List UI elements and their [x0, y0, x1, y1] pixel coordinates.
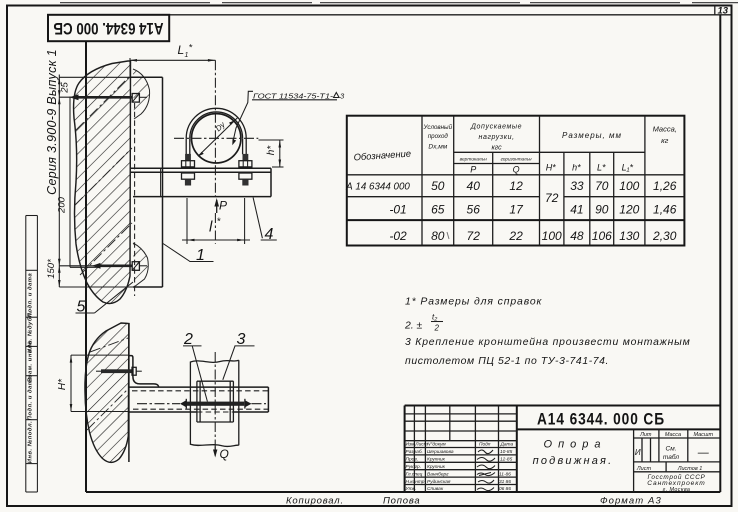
svg-text:06 86: 06 86 — [499, 486, 511, 492]
svg-text:56: 56 — [467, 203, 481, 217]
svg-text:17: 17 — [509, 203, 524, 217]
svg-text:1* Размеры для справок: 1* Размеры для справок — [405, 297, 543, 308]
svg-text:1,26: 1,26 — [653, 179, 677, 193]
svg-text:L*: L* — [597, 163, 606, 173]
svg-text:80: 80 — [431, 229, 445, 243]
svg-text:2. ±: 2. ± — [404, 321, 423, 332]
svg-text:пистолетом ПЦ 52-1 по ТУ-3-: пистолетом ПЦ 52-1 по ТУ-3-741-74. — [405, 356, 609, 367]
svg-text:130: 130 — [619, 229, 639, 243]
svg-text:Изм: Изм — [406, 442, 416, 448]
svg-text:72: 72 — [545, 191, 559, 205]
svg-text:Dх,мм: Dх,мм — [428, 144, 447, 151]
svg-text:13: 13 — [718, 5, 729, 16]
svg-text:-02: -02 — [389, 229, 407, 243]
svg-text:65: 65 — [431, 203, 445, 217]
svg-text:проход: проход — [428, 133, 449, 140]
svg-text:Размеры, мм: Размеры, мм — [562, 131, 622, 140]
svg-text:P: P — [219, 199, 227, 213]
svg-text:48: 48 — [570, 229, 584, 243]
svg-text:100: 100 — [542, 229, 562, 243]
svg-text:72: 72 — [467, 229, 481, 243]
svg-text:А 14 6344 000: А 14 6344 000 — [345, 182, 410, 193]
svg-text:90: 90 — [595, 203, 609, 217]
svg-text:Дата: Дата — [500, 442, 514, 448]
svg-text:31 86: 31 86 — [499, 479, 511, 485]
svg-text:-01: -01 — [389, 203, 406, 217]
svg-text:Масшт: Масшт — [693, 432, 713, 438]
svg-text:N°докум: N°докум — [427, 442, 446, 448]
svg-text:Рук.гр.: Рук.гр. — [406, 464, 422, 470]
svg-text:Листов 1: Листов 1 — [677, 466, 703, 472]
svg-text:41: 41 — [570, 203, 583, 217]
svg-text:Р: Р — [470, 165, 476, 175]
svg-text:25: 25 — [60, 82, 71, 94]
svg-text:Лист: Лист — [636, 466, 652, 472]
svg-text:t₂: t₂ — [432, 313, 437, 322]
svg-text:1: 1 — [196, 247, 205, 264]
svg-text:—: — — [697, 447, 710, 459]
svg-text:Масса,: Масса, — [653, 125, 677, 134]
svg-text:h*: h* — [266, 145, 277, 156]
svg-text:Рудинская: Рудинская — [427, 479, 451, 485]
svg-text:Лит: Лит — [639, 432, 652, 438]
svg-text:Лист: Лист — [414, 442, 427, 448]
svg-text:Опора: Опора — [544, 439, 607, 451]
svg-text:г. Москва: г. Москва — [663, 487, 691, 493]
svg-text:50: 50 — [431, 179, 445, 193]
svg-text:4: 4 — [265, 226, 274, 243]
svg-text:12: 12 — [509, 179, 523, 193]
svg-text:нагрузки,: нагрузки, — [479, 134, 515, 141]
svg-text:Взам. инв.№: Взам. инв.№ — [28, 340, 34, 382]
svg-text:10-85: 10-85 — [500, 449, 513, 455]
svg-text:40: 40 — [467, 179, 481, 193]
svg-text:3 Крепление кронштейна прои: 3 Крепление кронштейна произвести монтаж… — [405, 337, 691, 348]
svg-text:Масса: Масса — [665, 432, 681, 438]
svg-text:106: 106 — [592, 229, 612, 243]
svg-text:12-85: 12-85 — [500, 457, 513, 463]
svg-text:И: И — [635, 448, 641, 457]
svg-text:150*: 150* — [46, 259, 57, 279]
svg-text:70: 70 — [595, 179, 609, 193]
svg-text:11-86: 11-86 — [499, 471, 511, 477]
svg-text:L₁*: L₁* — [622, 163, 634, 173]
svg-text:А14 6344. 000 СБ: А14 6344. 000 СБ — [537, 411, 665, 429]
svg-text:100: 100 — [619, 179, 639, 193]
svg-text:кг: кг — [661, 136, 669, 145]
svg-text:Н*: Н* — [57, 378, 68, 390]
svg-text:Подп. и дата: Подп. и дата — [28, 273, 34, 318]
svg-text:Q: Q — [220, 447, 229, 461]
svg-text:Спивак: Спивак — [427, 486, 444, 492]
svg-text:h*: h* — [572, 163, 581, 173]
svg-text:Н*: Н* — [546, 163, 556, 173]
svg-text:См.: См. — [666, 446, 677, 453]
svg-text:120: 120 — [619, 203, 639, 217]
svg-text:А14 6344. 000 СБ: А14 6344. 000 СБ — [54, 19, 164, 38]
svg-text:табл: табл — [663, 453, 679, 461]
svg-text:Пров.: Пров. — [406, 457, 419, 463]
svg-text:Q: Q — [513, 165, 520, 175]
svg-text:Подп: Подп — [479, 442, 491, 448]
svg-text:Допускаемые: Допускаемые — [470, 124, 522, 131]
svg-text:Разраб.: Разраб. — [406, 449, 423, 455]
svg-text:Крупник: Крупник — [427, 457, 446, 463]
svg-text:кгс: кгс — [492, 145, 503, 152]
svg-text:горизонтальн: горизонтальн — [501, 157, 532, 162]
svg-text:подвижная.: подвижная. — [533, 455, 614, 467]
svg-text:Гл.спец: Гл.спец — [406, 471, 423, 477]
svg-text:Формат А3: Формат А3 — [600, 496, 662, 507]
svg-text:1,46: 1,46 — [653, 203, 677, 217]
svg-text:Копировал.: Копировал. — [286, 496, 344, 507]
svg-text:Подп. и дата: Подп. и дата — [28, 376, 34, 421]
svg-text:Условный: Условный — [423, 124, 453, 131]
svg-text:Шершавова: Шершавова — [427, 449, 454, 455]
svg-text:2,30: 2,30 — [652, 229, 677, 243]
svg-text:Инв. №подл.: Инв. №подл. — [28, 421, 34, 463]
svg-text:200: 200 — [57, 196, 68, 214]
svg-text:ГОСТ 11534-75-Т1-: ГОСТ 11534-75-Т1- — [253, 91, 334, 100]
svg-text:Серия 3.900-9 Выпуск 1: Серия 3.900-9 Выпуск 1 — [45, 49, 59, 195]
svg-text:2: 2 — [434, 324, 440, 333]
svg-text:вертикальн: вертикальн — [460, 158, 488, 163]
svg-text:Н.контр: Н.контр — [406, 479, 425, 485]
svg-text:33: 33 — [570, 179, 584, 193]
svg-text:Попова: Попова — [383, 496, 421, 507]
svg-text:22: 22 — [508, 229, 523, 243]
svg-text:Крупник: Крупник — [427, 464, 446, 470]
svg-text:L: L — [178, 43, 185, 57]
svg-text:*: * — [189, 43, 193, 54]
svg-text:Ваннберг: Ваннберг — [427, 471, 449, 477]
svg-text:Утв.: Утв. — [406, 486, 417, 492]
